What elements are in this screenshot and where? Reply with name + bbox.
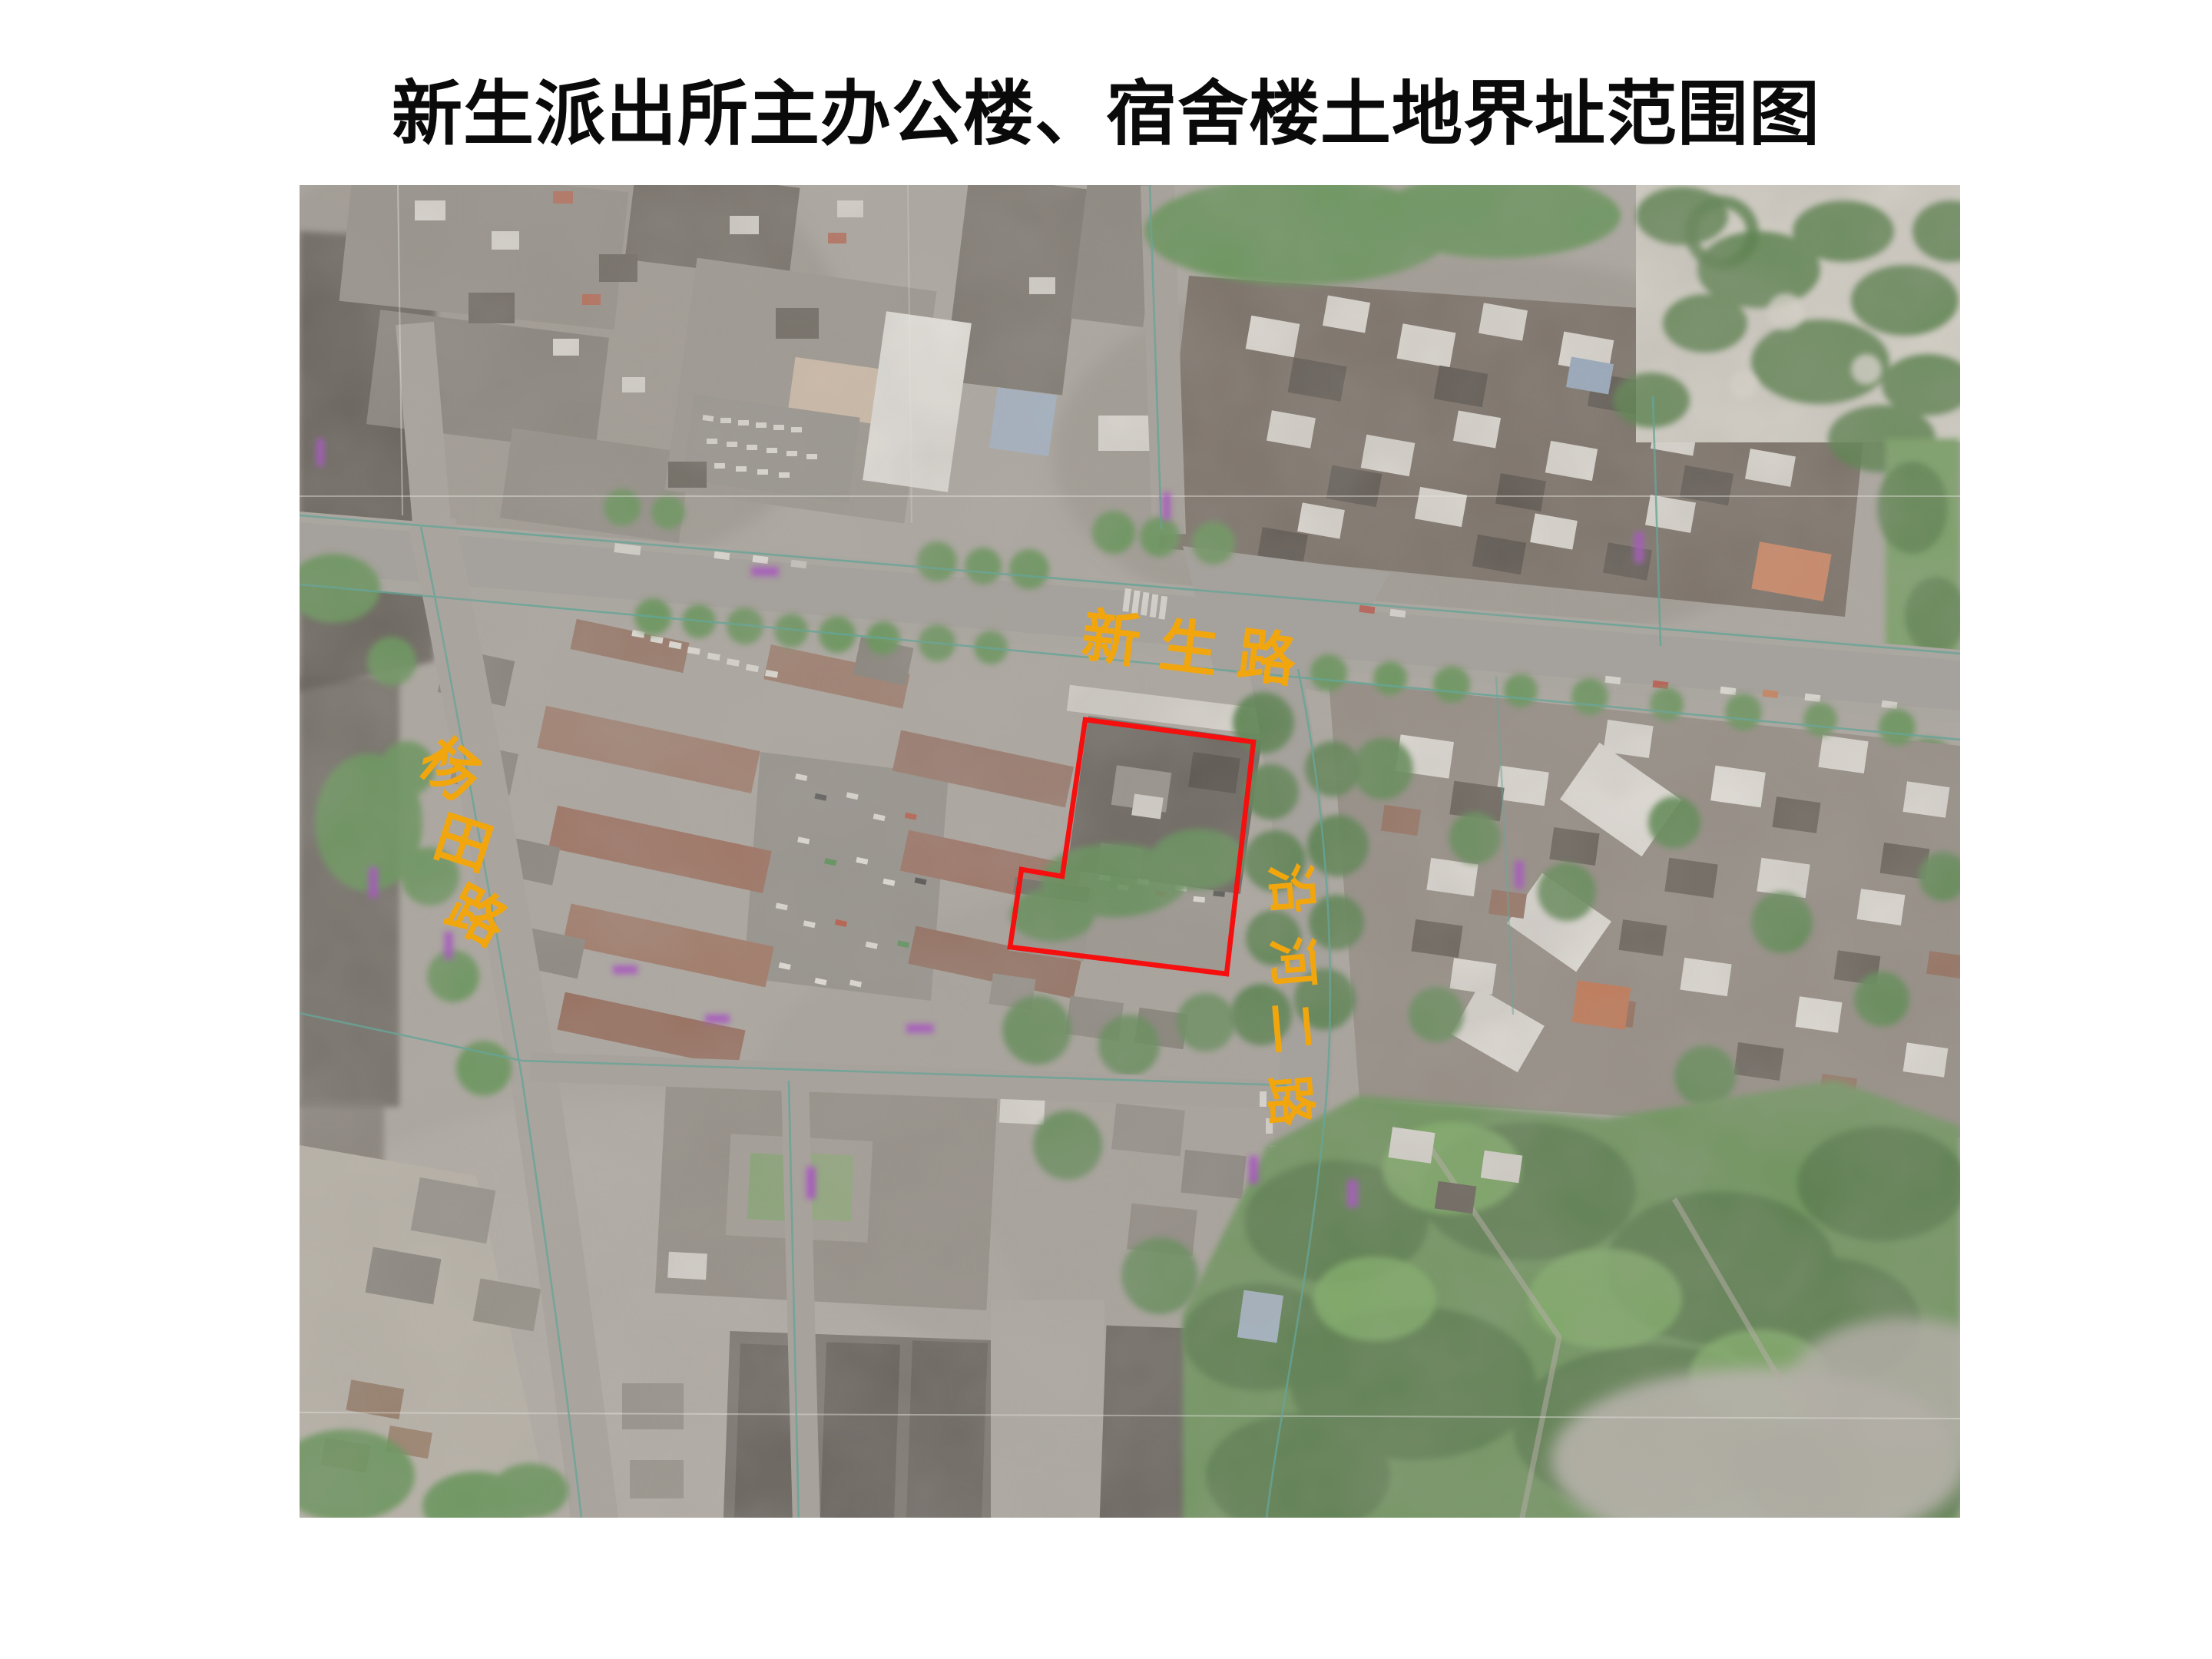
satellite-map: 新生路 杨 田 路 沿 河 二 路 <box>300 185 1960 1518</box>
svg-text:河: 河 <box>1262 935 1322 990</box>
svg-text:二: 二 <box>1260 1000 1320 1055</box>
page-title: 新生派出所主办公楼、宿舍楼土地界址范围图 <box>0 57 2212 159</box>
photo-blotch <box>300 185 1960 1518</box>
svg-text:路: 路 <box>1259 1073 1320 1129</box>
svg-text:沿: 沿 <box>1260 861 1320 916</box>
satellite-map-canvas: 新生路 杨 田 路 沿 河 二 路 <box>300 185 1960 1518</box>
